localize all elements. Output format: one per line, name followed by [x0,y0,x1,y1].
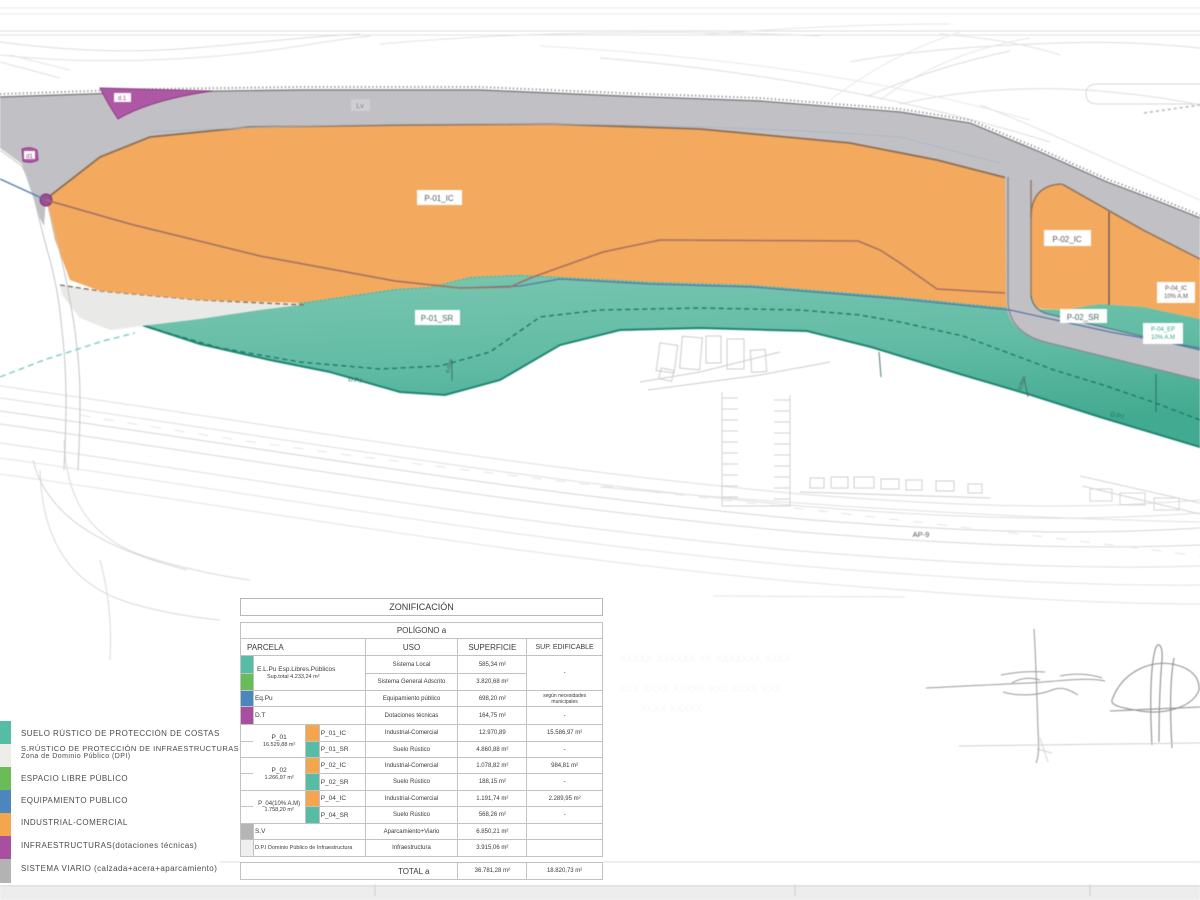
svg-text:d1: d1 [26,154,33,160]
svg-text:xxxxx xxxxxx xx xxxxxxx xxxx: xxxxx xxxxxx xx xxxxxxx xxxx [620,650,791,665]
svg-text:10% A.M: 10% A.M [1164,294,1188,300]
svg-text:P-01_SR: P-01_SR [421,314,454,323]
svg-text:xxx xxxx xxxxx xxx xxxx xxx: xxx xxxx xxxxx xxx xxxx xxx [620,680,782,695]
svg-text:10% A.M: 10% A.M [1151,335,1175,341]
svg-text:P-02_IC: P-02_IC [1052,235,1082,244]
svg-text:Lv: Lv [356,103,364,110]
svg-text:AP-9: AP-9 [913,530,930,539]
svg-text:xxxx xxxxx: xxxx xxxxx [640,700,703,715]
svg-text:P-02_SR: P-02_SR [1067,313,1100,322]
svg-text:d.1: d.1 [118,96,127,102]
svg-text:P-04_EP: P-04_EP [1151,327,1175,333]
svg-text:P-01_IC: P-01_IC [424,194,454,203]
svg-text:P-04_IC: P-04_IC [1165,286,1188,292]
